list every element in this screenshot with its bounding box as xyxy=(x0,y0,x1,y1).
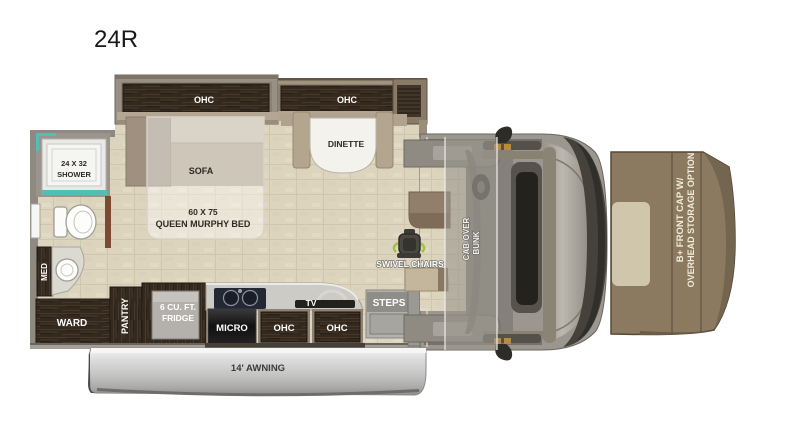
svg-text:MICRO: MICRO xyxy=(216,323,248,334)
svg-text:6 CU. FT.: 6 CU. FT. xyxy=(160,302,196,312)
svg-text:SHOWER: SHOWER xyxy=(57,170,91,179)
svg-text:OHC: OHC xyxy=(337,95,358,105)
svg-text:QUEEN MURPHY BED: QUEEN MURPHY BED xyxy=(156,219,251,229)
svg-text:BUNK: BUNK xyxy=(472,231,481,254)
svg-text:TV: TV xyxy=(306,298,317,308)
svg-text:DINETTE: DINETTE xyxy=(328,139,365,149)
svg-text:CAB-OVER: CAB-OVER xyxy=(462,217,471,260)
svg-text:24R: 24R xyxy=(94,26,138,53)
svg-text:MED: MED xyxy=(40,263,49,281)
svg-text:60 X 75: 60 X 75 xyxy=(188,207,218,217)
svg-text:B+ FRONT CAP W/: B+ FRONT CAP W/ xyxy=(675,177,686,262)
svg-text:OVERHEAD STORAGE OPTION: OVERHEAD STORAGE OPTION xyxy=(686,153,696,288)
svg-text:SWIVEL CHAIRS: SWIVEL CHAIRS xyxy=(376,259,444,269)
svg-text:14' AWNING: 14' AWNING xyxy=(231,363,285,374)
svg-text:24 X 32: 24 X 32 xyxy=(61,159,87,168)
svg-text:OHC: OHC xyxy=(273,323,294,334)
svg-text:OHC: OHC xyxy=(194,95,215,105)
svg-text:SOFA: SOFA xyxy=(189,166,214,176)
svg-text:STEPS: STEPS xyxy=(373,298,406,309)
svg-text:WARD: WARD xyxy=(57,318,88,329)
svg-text:PANTRY: PANTRY xyxy=(120,298,130,334)
svg-text:FRIDGE: FRIDGE xyxy=(162,313,194,323)
svg-text:OHC: OHC xyxy=(326,323,347,334)
